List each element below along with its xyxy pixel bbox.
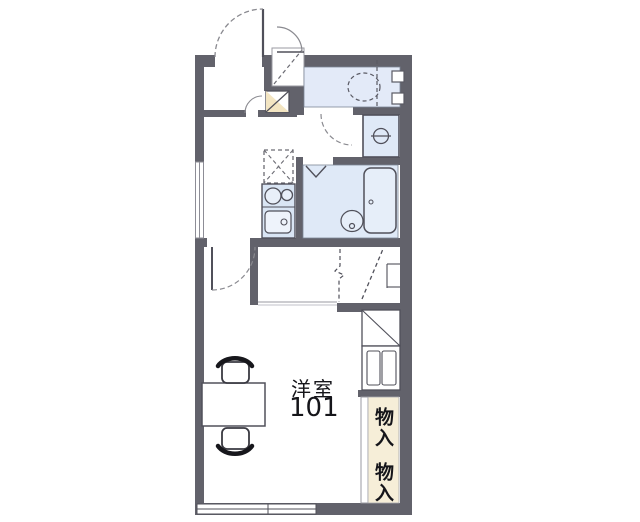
washbasin-icon <box>341 211 363 232</box>
partition-line <box>335 249 344 302</box>
bathtub-icon <box>364 168 396 233</box>
washing-machine-space <box>363 115 399 157</box>
entrance-door <box>215 9 263 57</box>
bathroom <box>303 165 398 238</box>
shoe-niche <box>272 27 304 86</box>
table-and-chairs <box>202 358 265 453</box>
storage-label-1: 物入 <box>372 402 394 454</box>
floor-plan-drawing <box>0 0 640 522</box>
kitchen <box>262 150 295 238</box>
chair-bottom <box>218 428 252 454</box>
loft-storage <box>258 249 400 305</box>
shelf-boxes <box>362 310 400 390</box>
storage-label-2: 物入 <box>372 457 394 509</box>
loft-ladder-icon <box>362 249 383 299</box>
kitchen-window <box>196 162 204 238</box>
floor-plan: 洋室 101 物入 物入 <box>0 0 640 522</box>
room-door <box>212 247 255 290</box>
room-number-label: 101 <box>289 393 339 423</box>
sliding-window <box>197 504 316 514</box>
table <box>202 383 265 426</box>
toilet-door-swing <box>321 114 352 145</box>
chair-top <box>218 358 252 383</box>
water-heater-box <box>245 91 289 113</box>
